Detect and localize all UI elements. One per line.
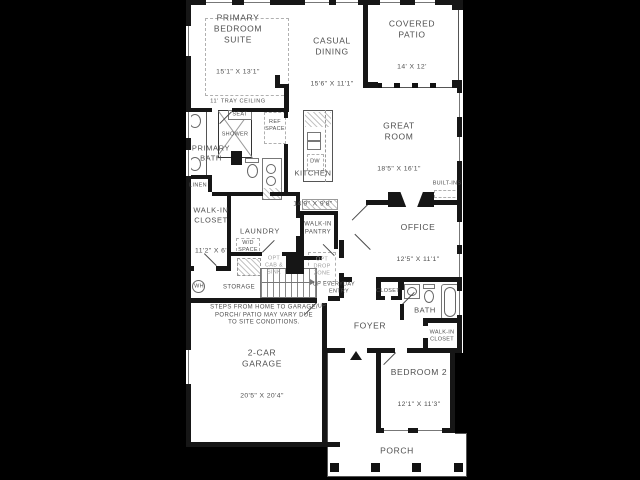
- window: [186, 150, 191, 176]
- floor-plan: PRIMARY BEDROOM SUITE 15'1" X 13'1" 11' …: [0, 0, 640, 480]
- window: [186, 112, 191, 138]
- room-label-covered-patio: COVERED PATIO 14' X 12': [389, 0, 435, 93]
- front-door-arrow: [350, 351, 362, 360]
- room-label-porch: PORCH: [380, 425, 414, 478]
- window: [186, 350, 191, 384]
- porch-column: [371, 463, 380, 472]
- room-label-casual-dining: CASUAL DINING 15'6" X 11'1": [310, 14, 353, 109]
- porch-column: [330, 463, 339, 472]
- room-label-great-room: GREAT ROOM 18'5" X 16'1": [377, 99, 421, 194]
- built-ins-label: BUILT-INS: [433, 181, 462, 188]
- room-label-walk-in-pantry: WALK-IN PANTRY: [304, 200, 332, 257]
- disclaimer-note: STEPS FROM HOME TO GARAGE/ PORCH/ PATIO …: [189, 284, 339, 349]
- linen-label: LINEN: [189, 183, 207, 190]
- room-label-bedroom-2: BEDROOM 2 12'1" X 11'3": [391, 346, 447, 430]
- shower-label: SHOWER: [222, 132, 249, 139]
- window: [457, 254, 462, 277]
- window: [457, 93, 462, 117]
- ref-space-label: REF SPACE: [265, 119, 285, 133]
- dishwasher-label: DW: [310, 159, 320, 166]
- water-heater-label: WH: [194, 284, 204, 291]
- opt-cab-sink-label: OPT CAB & SINK: [265, 256, 283, 277]
- wd-space-label: W/D SPACE: [238, 240, 258, 254]
- window: [457, 291, 462, 315]
- room-label-closet: CLOSET: [376, 267, 400, 315]
- window: [336, 0, 358, 5]
- window: [457, 222, 462, 245]
- porch-column: [454, 463, 463, 472]
- toilet-icon: [247, 164, 258, 178]
- opt-drop-zone-label: OPT DROP ZONE: [313, 257, 330, 278]
- toilet-icon: [245, 158, 259, 163]
- island-sink: [307, 132, 321, 141]
- up-label-entry: UP: [313, 282, 321, 289]
- room-label-office: OFFICE 12'5" X 11'1": [396, 201, 439, 285]
- sink-icon: [266, 176, 276, 186]
- window: [305, 0, 329, 5]
- window: [457, 137, 462, 161]
- seat-label: SEAT: [232, 112, 247, 119]
- sink-icon: [266, 164, 276, 174]
- room-label-primary-bedroom: PRIMARY BEDROOM SUITE 15'1" X 13'1" 11' …: [210, 0, 265, 127]
- up-label-stairs: UP: [318, 304, 326, 311]
- window: [186, 26, 191, 56]
